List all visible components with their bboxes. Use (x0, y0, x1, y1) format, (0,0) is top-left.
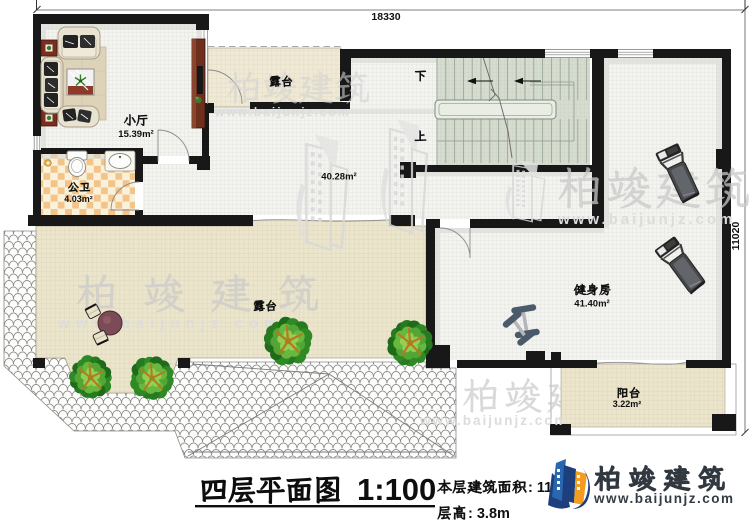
svg-text:www.baijunjz.com: www.baijunjz.com (419, 413, 569, 428)
svg-text:41.40m²: 41.40m² (574, 299, 609, 310)
svg-text:4.03m²: 4.03m² (64, 194, 93, 204)
svg-text:3.22m²: 3.22m² (613, 399, 642, 409)
svg-text:15.39m²: 15.39m² (118, 129, 153, 140)
svg-text:1:100: 1:100 (357, 472, 436, 507)
svg-text:: 3.8m: : 3.8m (468, 506, 510, 522)
svg-text:www.baijunjz.com: www.baijunjz.com (214, 105, 351, 119)
svg-text:18330: 18330 (371, 11, 400, 23)
svg-text:www.baijunjz.com: www.baijunjz.com (557, 211, 735, 228)
svg-text:www.baijunjz.com: www.baijunjz.com (593, 491, 735, 506)
svg-text:40.28m²: 40.28m² (321, 172, 356, 183)
